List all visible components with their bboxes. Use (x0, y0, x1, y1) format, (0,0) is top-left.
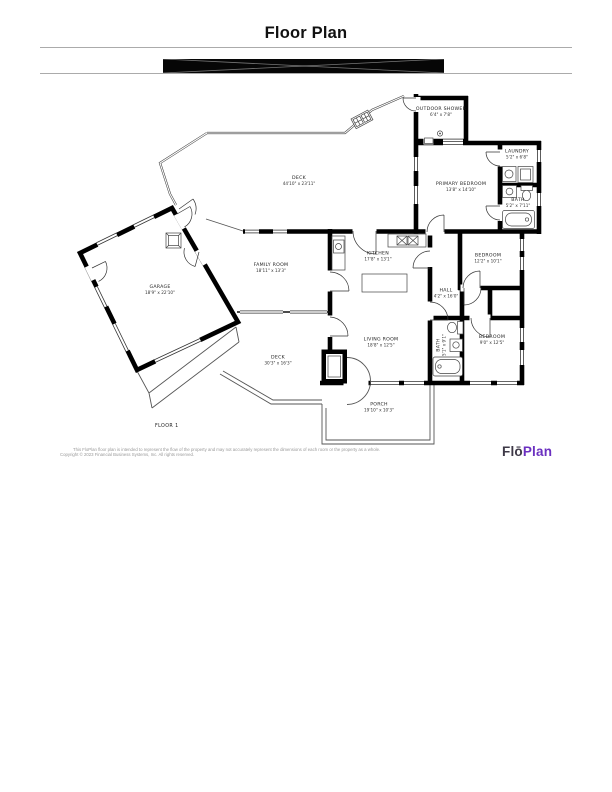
room-label-kitchen: KITCHEN 17'8" x 13'1" (364, 251, 391, 262)
room-label-primary-bedroom: PRIMARY BEDROOM 13'8" x 14'10" (436, 181, 486, 192)
svg-text:30'3" x 16'3": 30'3" x 16'3" (264, 361, 291, 366)
bath-sink-icon (503, 186, 517, 198)
shower-step (425, 138, 434, 144)
toilet2-icon (448, 322, 464, 335)
floplan-logo-flo: Flō (502, 444, 523, 459)
bathtub2-icon (433, 357, 463, 376)
fireplace (322, 350, 371, 405)
disclaimer-text: This FloPlan floor plan is intended to r… (60, 447, 440, 458)
svg-text:18'9" x 22'10": 18'9" x 22'10" (145, 290, 175, 295)
floor-plan-drawing: DECK 44'10" x 23'11" OUTDOOR SHOWER 6'4"… (0, 0, 612, 792)
room-label-family-room: FAMILY ROOM 18'11" x 13'3" (254, 262, 289, 273)
svg-text:12'2" x 10'1": 12'2" x 10'1" (474, 259, 501, 264)
svg-text:5'1" x 9'1": 5'1" x 9'1" (442, 334, 447, 356)
svg-text:4'2" x 16'0": 4'2" x 16'0" (434, 294, 459, 299)
bathtub-icon (503, 211, 535, 229)
floplan-logo: FlōPlan (502, 444, 552, 459)
svg-text:18'11" x 13'3": 18'11" x 13'3" (256, 268, 286, 273)
room-label-garage: GARAGE 18'9" x 22'10" (145, 284, 175, 295)
room-label-deck-upper: DECK 44'10" x 23'11" (283, 175, 316, 186)
svg-text:5'2" x 7'11": 5'2" x 7'11" (506, 203, 531, 208)
floor-label: FLOOR 1 (155, 423, 179, 429)
furnace-icon (166, 233, 181, 248)
room-label-outdoor-shower: OUTDOOR SHOWER 6'4" x 7'8" (416, 106, 467, 117)
dryer-icon (518, 167, 533, 183)
svg-text:9'0" x 12'5": 9'0" x 12'5" (480, 340, 505, 345)
shower-head-icon (437, 131, 442, 136)
svg-text:18'8" x 12'5": 18'8" x 12'5" (367, 343, 394, 348)
svg-text:13'8" x 14'10": 13'8" x 14'10" (446, 187, 476, 192)
svg-text:17'8" x 13'1": 17'8" x 13'1" (364, 257, 391, 262)
grill-icon (351, 110, 373, 129)
svg-text:5'2" x 6'8": 5'2" x 6'8" (506, 155, 528, 160)
room-label-laundry: LAUNDRY 5'2" x 6'8" (505, 149, 529, 160)
disclaimer-line-2: Copyright © 2023 Financial Business Syst… (60, 452, 440, 457)
room-label-bath-lower: BATH 5'1" x 9'1" (436, 334, 447, 356)
room-label-deck-lower: DECK 30'3" x 16'3" (264, 355, 291, 366)
svg-text:19'10" x 10'3": 19'10" x 10'3" (364, 408, 394, 413)
svg-text:44'10" x 23'11": 44'10" x 23'11" (283, 181, 316, 186)
svg-text:6'4" x 7'8": 6'4" x 7'8" (430, 112, 452, 117)
room-label-living-room: LIVING ROOM 18'8" x 12'5" (364, 337, 399, 348)
floplan-logo-plan: Plan (523, 444, 552, 459)
washer-icon (503, 167, 517, 182)
room-label-bedroom-upper: BEDROOM 12'2" x 10'1" (474, 253, 501, 264)
floor-plan-page: Floor Plan (0, 0, 612, 792)
kitchen-sink-icon (334, 240, 345, 253)
room-label-hall: HALL 4'2" x 16'0" (434, 288, 459, 299)
kitchen-island (362, 274, 407, 292)
bath2-sink-icon (450, 339, 463, 352)
room-label-bedroom-lower: BEDROOM 9'0" x 12'5" (479, 334, 505, 345)
room-label-porch: PORCH 19'10" x 10'3" (364, 402, 394, 413)
